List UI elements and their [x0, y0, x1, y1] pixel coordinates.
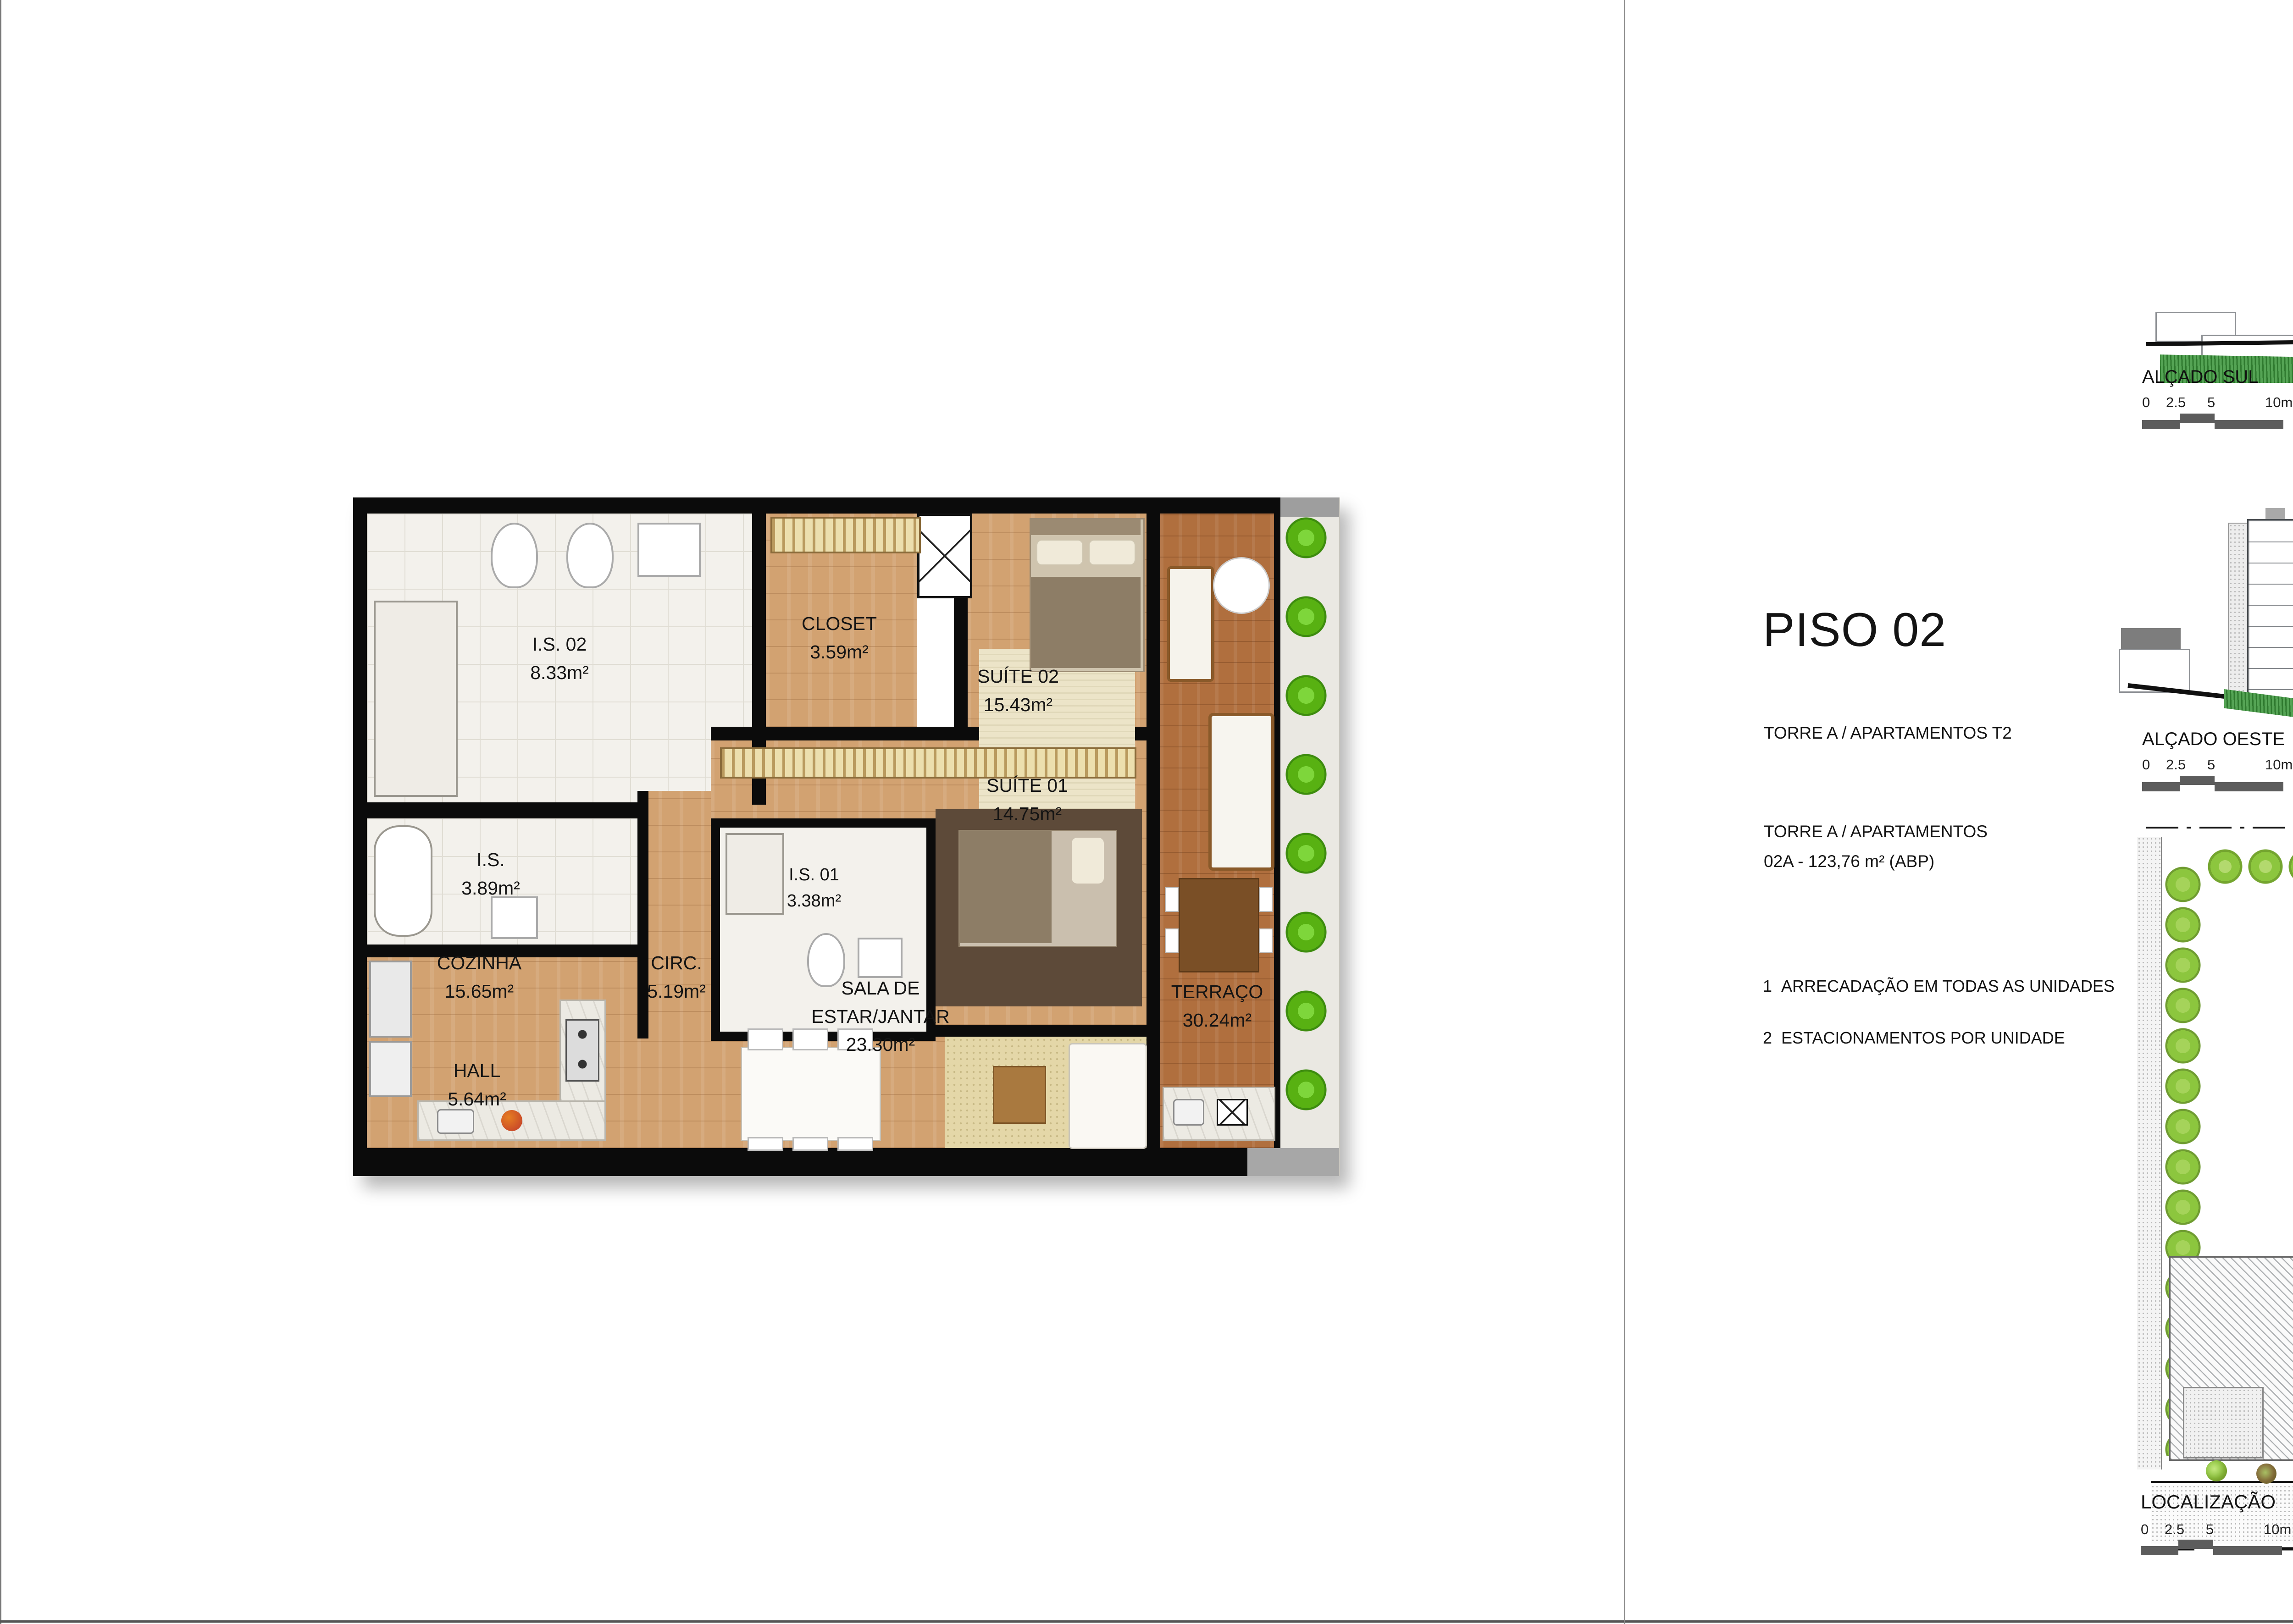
- apartment-block-detail: 02A - 123,76 m² (ABP): [1764, 852, 1934, 871]
- suite01-wardrobe: [720, 747, 1136, 779]
- terrace-lounger: [1167, 566, 1214, 682]
- tree-row: [2206, 847, 2293, 886]
- closet-wardrobe: [770, 517, 921, 553]
- terrace-chair: [1165, 928, 1179, 953]
- wall: [353, 497, 367, 1176]
- suite02-bed: [1030, 518, 1145, 672]
- elevation-west-scale-ticks: 0 2.5 5 10m: [2142, 757, 2293, 773]
- headboard: [1031, 519, 1141, 535]
- page-title: PISO 02: [1763, 603, 1946, 657]
- terrace-dining-table: [1179, 878, 1259, 972]
- label-is02: I.S. 028.33m²: [530, 630, 589, 687]
- terrace-bbq-counter: [1163, 1087, 1275, 1141]
- label-is01: I.S. 013.38m²: [787, 862, 841, 914]
- elevation-south-scale-ticks: 0 2.5 5 10m: [2142, 394, 2293, 411]
- pillow: [1036, 540, 1083, 565]
- basin-is02: [637, 523, 701, 577]
- blanket: [1031, 577, 1141, 668]
- wall: [353, 497, 1279, 514]
- elevator-shaft: [917, 514, 972, 598]
- dining-chair: [792, 1137, 828, 1151]
- label-is: I.S.3.89m²: [461, 846, 520, 902]
- terrace-chair: [1259, 928, 1273, 953]
- pillow: [1089, 540, 1135, 565]
- dining-chair: [837, 1137, 873, 1151]
- shower-is02: [374, 601, 458, 797]
- siteplan-scale-ticks: 0 2.5 5 10m: [2141, 1521, 2293, 1538]
- label-closet: CLOSET3.59m²: [802, 610, 877, 666]
- label-cozinha: COZINHA15.65m²: [437, 949, 522, 1005]
- dining-chair: [748, 1137, 783, 1151]
- siteplan-scalebar: [2141, 1540, 2292, 1558]
- wall: [367, 802, 637, 818]
- basin-is: [491, 896, 538, 939]
- note-1-num: 1: [1763, 977, 1772, 995]
- suite01-bed: [958, 830, 1117, 947]
- gravel-strip: [2137, 837, 2162, 1469]
- note-1-text: ARRECADAÇÃO EM TODAS AS UNIDADES: [1781, 977, 2115, 995]
- roof-sliver: [1279, 497, 1339, 517]
- note-1: 1 ARRECADAÇÃO EM TODAS AS UNIDADES: [1763, 977, 2115, 996]
- label-terraco: TERRAÇO30.24m²: [1171, 978, 1263, 1034]
- blanket: [960, 831, 1052, 943]
- kitchen-counter-h: [417, 1100, 606, 1141]
- siteplan-label: LOCALIZAÇÃO: [2141, 1491, 2276, 1513]
- page-divider: [1624, 0, 1625, 1624]
- label-suite01: SUÍTE 0114.75m²: [986, 772, 1068, 828]
- site-plan-drawing: TORRE B CIRCULAÇÃO/HALL52.06m² 02A 02B 0…: [2137, 821, 2293, 1568]
- dining-table: [741, 1047, 881, 1141]
- low-structure: [2121, 628, 2181, 649]
- page-border-bottom: [0, 1620, 2293, 1623]
- bbq-sink-icon: [1173, 1099, 1204, 1126]
- apartment-block-title: TORRE A / APARTAMENTOS: [1764, 822, 1988, 841]
- wall: [353, 1148, 1247, 1176]
- elevation-west-label: ALÇADO OESTE: [2142, 729, 2285, 750]
- plan-sheet: I.S. 028.33m² CLOSET3.59m² SUÍTE 0215.43…: [0, 0, 2293, 1624]
- wall: [1274, 497, 1280, 1148]
- bidet-icon: [566, 523, 614, 588]
- shrub-row: [2256, 1464, 2276, 1484]
- terrace-chair: [1259, 887, 1273, 912]
- label-suite02: SUÍTE 0215.43m²: [977, 663, 1059, 719]
- shrub-row: [2206, 1460, 2227, 1481]
- cabinet-icon: [369, 1041, 412, 1097]
- basin-is01: [858, 938, 903, 978]
- bottom-gray-strip: [1247, 1148, 1339, 1176]
- elevation-west-scalebar: [2142, 776, 2293, 794]
- roof-stub: [2265, 508, 2285, 519]
- label-hall: HALL5.64m²: [448, 1057, 506, 1113]
- label-circ: CIRC.5.19m²: [647, 949, 706, 1005]
- planting-bed: [2183, 1387, 2264, 1458]
- bathtub-is: [374, 825, 432, 937]
- dining-chair: [748, 1028, 783, 1050]
- page-border-left: [0, 0, 1, 1624]
- wall: [1146, 514, 1160, 1148]
- fridge-icon: [369, 961, 412, 1038]
- wall: [917, 1025, 1146, 1037]
- coffee-table: [993, 1066, 1046, 1124]
- page-subtitle: TORRE A / APARTAMENTOS T2: [1764, 724, 2012, 743]
- bbq-grill-icon: [1217, 1099, 1248, 1126]
- stove-icon: [565, 1019, 599, 1082]
- terrace-sofa: [1208, 713, 1274, 871]
- elevation-south-drawing: 02A: [2146, 18, 2293, 422]
- pillow: [1072, 838, 1104, 884]
- note-2: 2 ESTACIONAMENTOS POR UNIDADE: [1763, 1028, 2065, 1048]
- toilet-icon: [491, 523, 538, 588]
- floorplan-drawing: I.S. 028.33m² CLOSET3.59m² SUÍTE 0215.43…: [353, 497, 1339, 1176]
- note-2-text: ESTACIONAMENTOS POR UNIDADE: [1781, 1028, 2065, 1047]
- terrace-round-table: [1213, 557, 1270, 614]
- label-sala: SALA DE ESTAR/JANTAR 23.30m²: [811, 974, 949, 1059]
- torre-a-west-elevation: [2247, 519, 2293, 705]
- concrete-strip: [2228, 523, 2249, 704]
- note-2-num: 2: [1763, 1028, 1772, 1047]
- elevation-south-scalebar: [2142, 414, 2293, 432]
- elevation-south-label: ALÇADO SUL: [2142, 367, 2258, 387]
- hedge-strip: [1284, 514, 1328, 1147]
- sofa: [1069, 1043, 1147, 1149]
- shower-is01: [726, 833, 784, 915]
- terrace-chair: [1165, 887, 1179, 912]
